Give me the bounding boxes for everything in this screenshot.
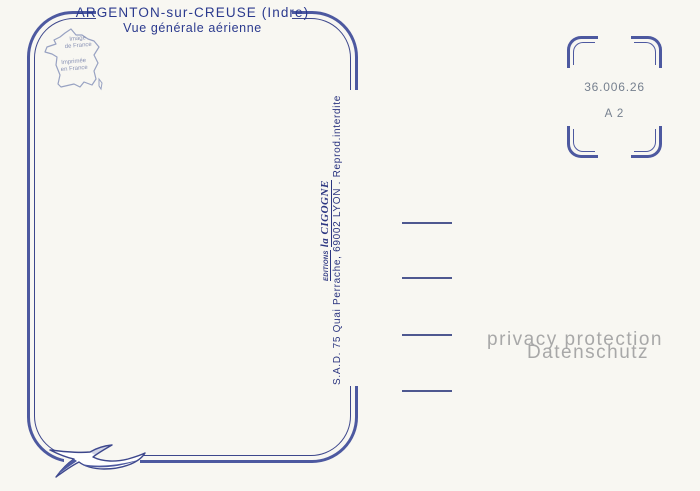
stamp-corner-top-right bbox=[631, 36, 662, 68]
stork-logo-icon bbox=[48, 436, 148, 482]
publisher-logo-prefix: Editions bbox=[324, 250, 331, 281]
stamp-corner-top-left bbox=[567, 36, 598, 68]
stamp-box: 36.006.26 A 2 bbox=[567, 36, 662, 158]
stamp-series-code: A 2 bbox=[567, 108, 662, 120]
publisher-imprint: S.A.D. 75 Quai Perrache, 69002 LYON . Re… bbox=[332, 95, 346, 385]
privacy-watermark: privacy protection Datenschutz bbox=[455, 333, 695, 359]
address-line bbox=[402, 222, 452, 224]
publisher-logo-name: la CIGOGNE bbox=[319, 180, 332, 247]
stamp-corner-bottom-left bbox=[567, 126, 598, 158]
france-map-badge: Image de France Imprimée en France bbox=[44, 27, 104, 93]
address-line bbox=[402, 277, 452, 279]
stamp-reference-number: 36.006.26 bbox=[567, 80, 662, 94]
stamp-corner-bottom-right bbox=[631, 126, 662, 158]
address-line bbox=[402, 334, 452, 336]
address-line bbox=[402, 390, 452, 392]
publisher-logo: Editionsla CIGOGNE bbox=[315, 171, 330, 281]
privacy-watermark-line2: Datenschutz bbox=[468, 346, 700, 359]
postcard-back: { "postcard": { "title": { "line1": "ARG… bbox=[0, 0, 700, 491]
title-location: ARGENTON-sur-CREUSE (Indre) bbox=[27, 5, 358, 20]
